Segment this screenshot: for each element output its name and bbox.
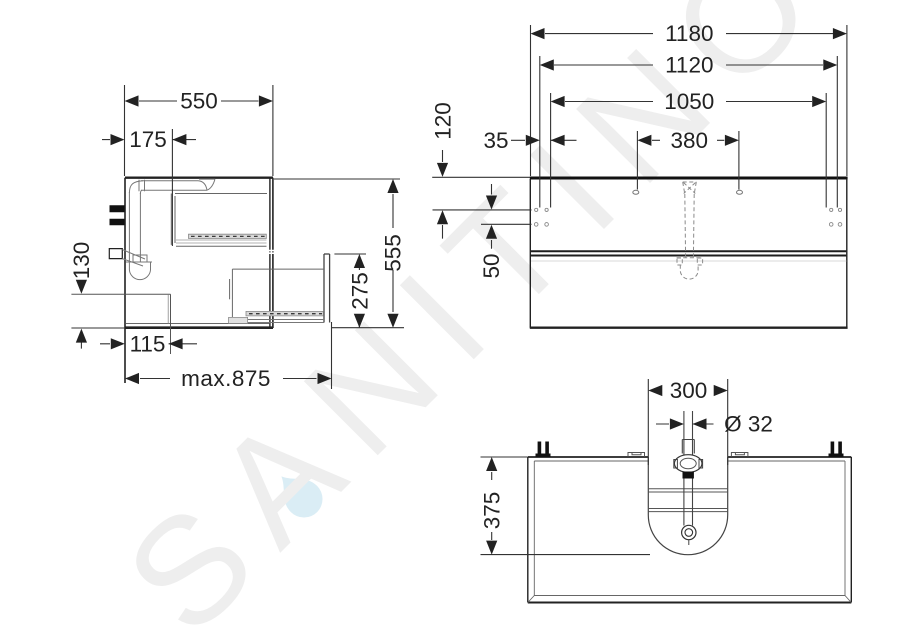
svg-text:max.875: max.875 [181,366,271,391]
svg-text:1120: 1120 [665,53,713,78]
svg-text:Ø 32: Ø 32 [724,412,773,437]
svg-text:375: 375 [480,492,505,530]
svg-text:550: 550 [180,89,218,114]
svg-text:130: 130 [69,242,94,280]
svg-text:175: 175 [129,127,167,152]
svg-text:120: 120 [431,102,456,140]
svg-text:35: 35 [483,128,508,153]
svg-text:50: 50 [479,253,504,278]
svg-text:555: 555 [381,234,406,272]
svg-text:380: 380 [671,128,709,153]
svg-text:275: 275 [347,272,372,310]
svg-text:1050: 1050 [664,89,714,114]
svg-text:300: 300 [670,378,708,403]
svg-text:1180: 1180 [665,21,713,46]
svg-text:115: 115 [130,331,166,356]
